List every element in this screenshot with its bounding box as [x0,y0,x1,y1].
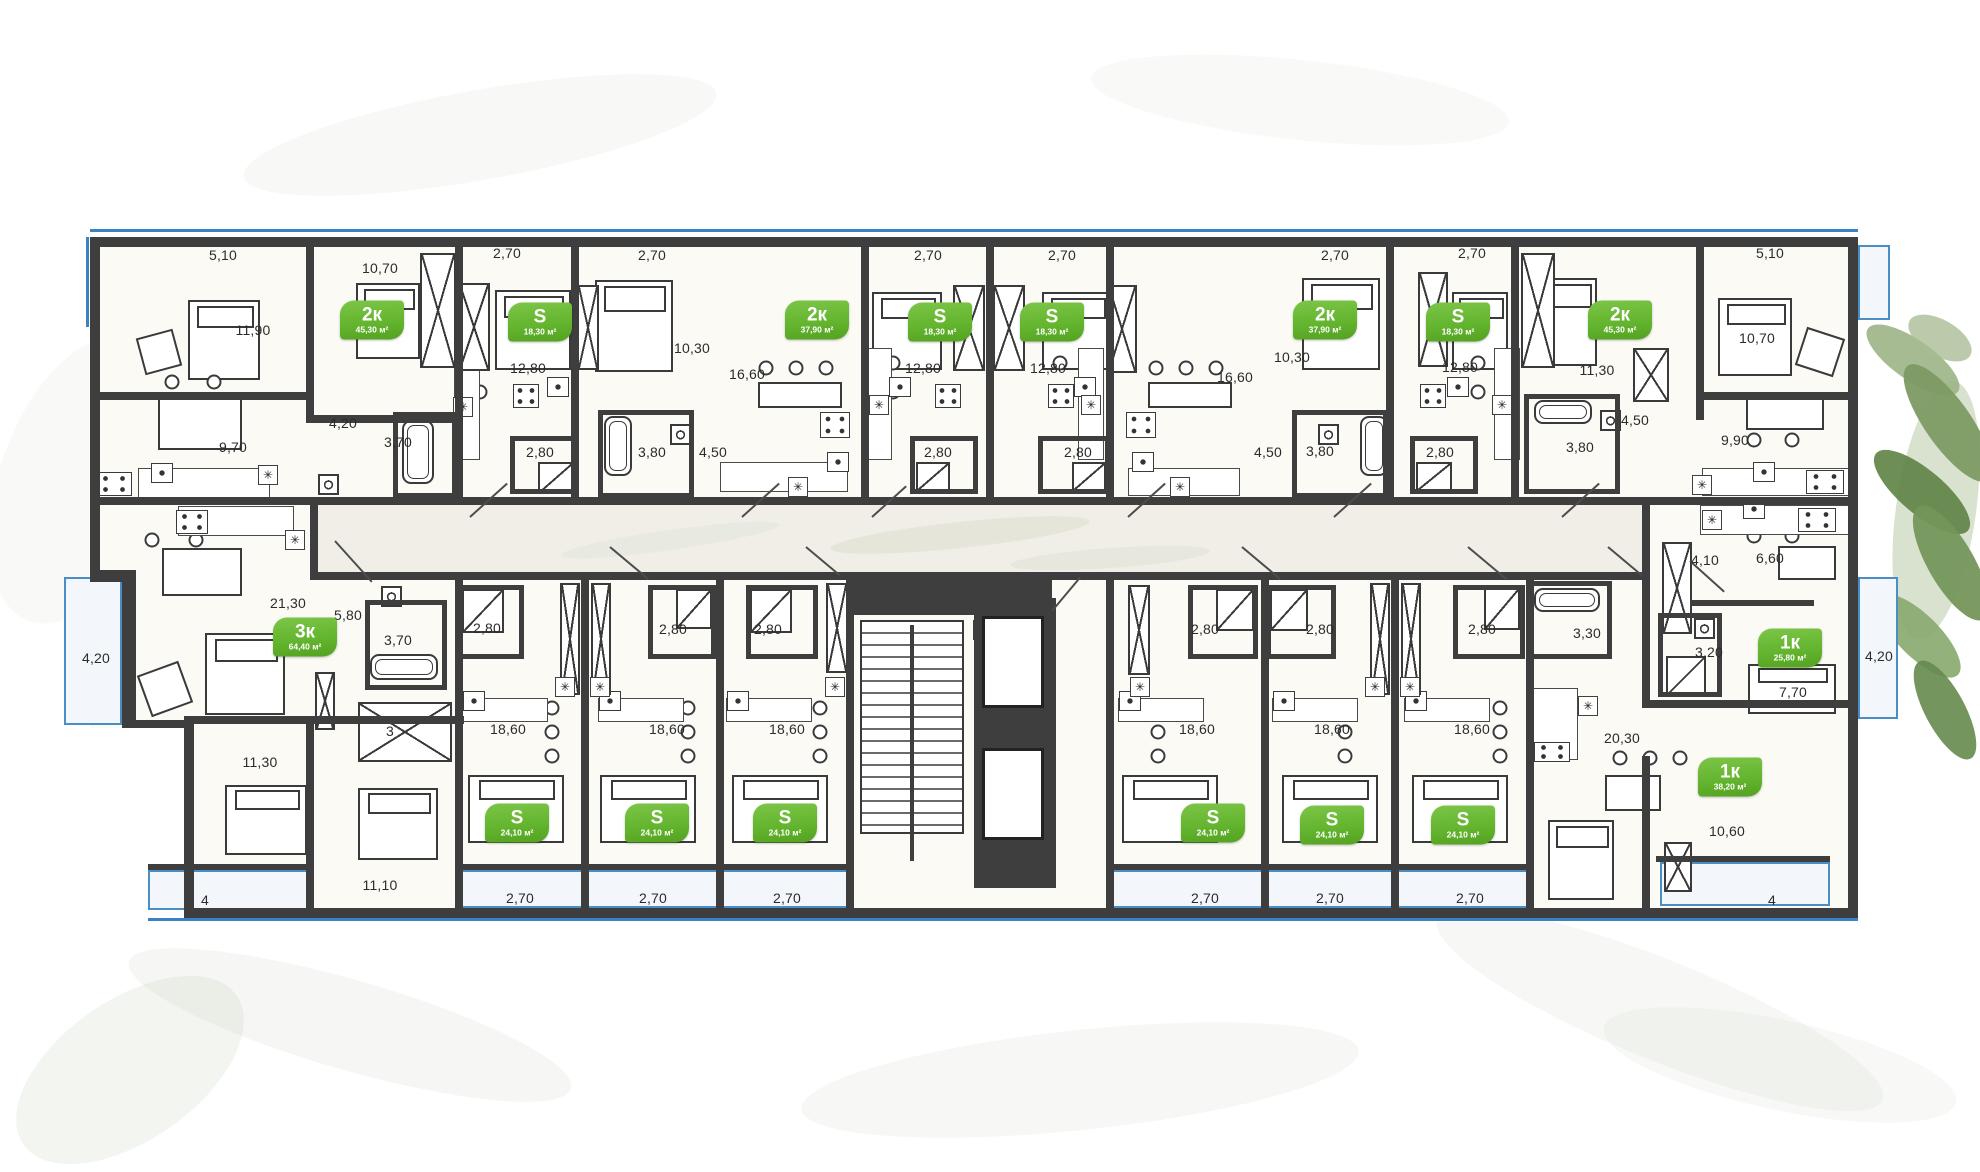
stool [1151,749,1166,764]
dimension-label: 12,80 [1030,360,1066,376]
dimension-label: 5,80 [334,607,362,623]
stool [1493,701,1508,716]
fridge-glyph: ✳ [1370,681,1380,693]
dimension-label: 11,30 [1580,362,1615,378]
stool [1151,725,1166,740]
dimension-label: 18,60 [769,721,805,737]
badge-type: S [651,809,664,827]
badge-type: S [1207,809,1220,827]
stove-icon [1798,508,1836,532]
badge-area: 18,30 м² [524,326,557,336]
wardrobe [420,253,456,368]
dimension-label: 4,50 [699,444,727,460]
fridge-glyph: ✳ [830,681,840,693]
wall [910,625,914,861]
fridge-glyph: ✳ [595,681,605,693]
dimension-label: 12,80 [905,360,941,376]
wall [1110,864,1534,870]
fridge-icon: ✳ [1170,477,1190,497]
fridge-icon: ✳ [590,677,610,697]
badge-area: 37,90 м² [1309,324,1342,334]
dimension-label: 4,20 [82,650,110,666]
sink-icon [463,691,485,711]
dimension-label: 10,70 [1739,330,1775,346]
badge-area: 38,20 м² [1714,781,1747,791]
stove-icon [935,384,961,408]
stool [1471,385,1486,400]
wardrobe [826,583,848,673]
blue-outline [148,918,1858,921]
fridge-icon: ✳ [1702,510,1722,530]
fridge-glyph: ✳ [560,681,570,693]
stool [1785,433,1800,448]
wall [184,724,194,914]
badge-type: 2к [362,306,382,324]
dimension-label: 4,50 [1254,444,1282,460]
wardrobe [1664,842,1692,892]
stool [1493,725,1508,740]
badge-type: 2к [807,306,827,324]
dimension-label: 9,70 [219,439,247,455]
dimension-label: 10,70 [362,260,398,276]
badge-type: 2к [1315,306,1335,324]
badge-type: S [779,809,792,827]
stool [207,375,222,390]
elevator [982,748,1044,840]
dimension-label: 2,80 [924,444,952,460]
apartment-badge[interactable]: S18,30 м² [1426,303,1490,342]
fridge-icon: ✳ [825,677,845,697]
stove-icon [513,384,539,408]
apartment-badge[interactable]: S18,30 м² [508,303,572,342]
dimension-label: 3,80 [638,444,666,460]
fridge-glyph: ✳ [1135,681,1145,693]
dimension-label: 2,70 [1191,890,1219,906]
sink-icon [727,691,749,711]
apartment-badge[interactable]: S24,10 м² [625,804,689,843]
wall [1642,756,1650,918]
badge-type: S [1046,308,1059,326]
badge-area: 64,40 м² [289,641,322,651]
badge-type: 1к [1780,634,1800,652]
badge-area: 37,90 м² [801,324,834,334]
wardrobe [577,285,599,370]
sink-icon [827,452,849,472]
dimension-label: 2,70 [1321,247,1349,263]
badge-area: 25,80 м² [1774,652,1807,662]
dimension-label: 3 [386,723,394,739]
dimension-label: 2,70 [773,890,801,906]
apartment-badge[interactable]: S24,10 м² [1431,806,1495,845]
fridge-icon: ✳ [1692,475,1712,495]
table [1778,546,1836,580]
bed [358,788,438,860]
dimension-label: 11,30 [243,754,278,770]
apartment-badge[interactable]: S18,30 м² [908,303,972,342]
stool [545,749,560,764]
fridge-icon: ✳ [285,530,305,550]
apartment-badge[interactable]: S24,10 м² [753,804,817,843]
stool [1338,749,1353,764]
fridge-glyph: ✳ [1086,399,1096,411]
bathroom-wall [1528,581,1612,659]
badge-area: 24,10 м² [1447,829,1480,839]
balcony [148,870,312,910]
sink-icon [1074,377,1096,397]
dimension-label: 10,60 [1709,823,1745,839]
dimension-label: 3,70 [384,632,412,648]
bathroom-wall [393,412,457,498]
dimension-label: 2,80 [473,620,501,636]
bed [188,300,260,380]
dimension-label: 18,60 [1314,721,1350,737]
dimension-label: 18,60 [649,721,685,737]
wall [90,237,1858,247]
palm-leaf [1902,652,1980,768]
badge-type: S [1457,811,1470,829]
stool [165,375,180,390]
dimension-label: 2,80 [1191,621,1219,637]
stool [681,749,696,764]
fridge-icon: ✳ [555,677,575,697]
badge-area: 24,10 м² [501,827,534,837]
dimension-label: 12,80 [1442,359,1478,375]
table [758,382,842,408]
dimension-label: 2,70 [914,247,942,263]
fridge-icon: ✳ [1492,395,1512,415]
apartment-badge[interactable]: 2к37,90 м² [785,301,849,340]
dimension-label: 4 [201,892,209,908]
badge-area: 45,30 м² [1604,324,1637,334]
balcony [1858,245,1890,320]
wall [90,237,100,577]
background-leaf [796,1001,1363,1159]
dimension-label: 2,80 [1064,444,1092,460]
fridge-glyph: ✳ [1707,514,1717,526]
floorplan-canvas: ✳✳✳✳✳✳✳✳✳✳✳✳✳✳✳✳✳✳ 5,1010,702,702,702,70… [0,0,1980,1172]
dimension-label: 18,60 [1454,721,1490,737]
wall [1511,237,1519,505]
blue-outline [90,229,1858,232]
fridge-glyph: ✳ [793,481,803,493]
fridge-glyph: ✳ [1175,481,1185,493]
wall [1690,600,1814,606]
apartment-badge[interactable]: 3к64,40 м² [273,618,337,657]
table [1746,396,1824,430]
stool [1673,751,1688,766]
dimension-label: 21,30 [270,595,306,611]
stool [545,725,560,740]
wall [184,716,464,724]
badge-area: 24,10 м² [1197,827,1230,837]
wall [846,577,1052,615]
badge-type: S [1452,308,1465,326]
background-leaf [236,49,724,221]
dimension-label: 10,30 [1274,349,1310,365]
dimension-label: 4,20 [1865,648,1893,664]
dimension-label: 2,70 [1456,890,1484,906]
dimension-label: 2,70 [506,890,534,906]
dimension-label: 2,70 [493,245,521,261]
dimension-label: 2,80 [1426,444,1454,460]
dimension-label: 2,70 [639,890,667,906]
wall [1642,497,1650,708]
dimension-label: 7,70 [1779,684,1807,700]
dimension-label: 2,80 [526,444,554,460]
badge-type: 3к [295,623,315,641]
stove-icon [176,510,208,534]
fridge-glyph: ✳ [290,534,300,546]
stool [813,725,828,740]
table [1148,382,1232,408]
badge-area: 18,30 м² [924,326,957,336]
wall [1650,700,1858,708]
apartment-badge[interactable]: S24,10 м² [485,804,549,843]
apartment-badge[interactable]: S18,30 м² [1020,303,1084,342]
dimension-label: 4,10 [1691,552,1719,568]
bed [595,280,673,372]
bed [225,785,307,855]
dimension-label: 12,80 [510,360,546,376]
fridge-icon: ✳ [1578,696,1598,716]
dimension-label: 2,70 [1048,247,1076,263]
stool [813,749,828,764]
background-leaf [1087,38,1513,161]
dimension-label: 3,30 [1573,625,1601,641]
fridge-glyph: ✳ [1497,399,1507,411]
badge-area: 45,30 м² [356,324,389,334]
sink-icon [1132,452,1154,472]
stove-icon [1126,412,1156,438]
dimension-label: 4,50 [1621,412,1649,428]
apartment-badge[interactable]: S24,10 м² [1300,806,1364,845]
badge-type: 2к [1610,306,1630,324]
stool [1179,361,1194,376]
stove-icon [1806,470,1844,494]
dimension-label: 3,80 [1566,439,1594,455]
wall [310,497,318,580]
apartment-badge[interactable]: 1к25,80 м² [1758,629,1822,668]
wall [90,497,1858,505]
badge-area: 18,30 м² [1442,326,1475,336]
fridge-icon: ✳ [1365,677,1385,697]
fridge-glyph: ✳ [874,399,884,411]
dimension-label: 2,80 [754,621,782,637]
dimension-label: 5,10 [1756,245,1784,261]
elevator [982,616,1044,708]
dimension-label: 5,10 [209,247,237,263]
dimension-label: 2,70 [1458,245,1486,261]
blue-outline [86,237,89,327]
dimension-label: 2,80 [1468,621,1496,637]
dimension-label: 2,70 [1316,890,1344,906]
dimension-label: 2,80 [1306,621,1334,637]
badge-type: S [934,308,947,326]
wardrobe [1521,253,1555,368]
dimension-label: 9,90 [1721,432,1749,448]
apartment-badge[interactable]: 2к45,30 м² [340,301,404,340]
dimension-label: 18,60 [490,721,526,737]
stove-icon [1534,742,1570,762]
dimension-label: 2,80 [659,621,687,637]
fridge-icon: ✳ [1130,677,1150,697]
wall [861,237,869,505]
stool [1149,361,1164,376]
wardrobe [1633,348,1669,402]
apartment-badge[interactable]: 2к37,90 м² [1293,301,1357,340]
stool [1613,751,1628,766]
fridge-icon: ✳ [1081,395,1101,415]
dimension-label: 4 [1768,892,1776,908]
fridge-icon: ✳ [258,465,278,485]
badge-type: 1к [1720,763,1740,781]
wall [306,720,314,912]
wall [1848,237,1858,918]
dimension-label: 10,30 [674,340,710,356]
table [1605,775,1661,811]
apartment-badge[interactable]: 1к38,20 м² [1698,758,1762,797]
wardrobe [358,702,452,762]
wall [1696,392,1858,400]
washer-icon [318,474,339,495]
sink-icon [1447,377,1469,397]
wall [122,570,136,728]
sink-icon [547,377,569,397]
stove-icon [1420,384,1446,408]
sink-icon [1753,462,1775,482]
background-leaf [1595,984,1966,1147]
stool [789,361,804,376]
sink-icon [889,377,911,397]
badge-type: S [534,308,547,326]
stool [813,701,828,716]
badge-type: S [511,809,524,827]
badge-area: 24,10 м² [1316,829,1349,839]
wall [455,864,850,870]
wall [1656,856,1830,862]
sink-icon [1273,691,1295,711]
apartment-badge[interactable]: S24,10 м² [1181,804,1245,843]
fridge-glyph: ✳ [1405,681,1415,693]
fridge-icon: ✳ [869,395,889,415]
stool [145,533,160,548]
stove-icon [1048,384,1074,408]
stool [1493,749,1508,764]
bed [1548,820,1614,900]
dimension-label: 11,10 [363,877,398,893]
wall [184,908,1858,918]
wall [986,237,994,505]
badge-area: 18,30 м² [1036,326,1069,336]
fridge-glyph: ✳ [263,469,273,481]
sink-icon [151,463,173,483]
stove-icon [820,412,850,438]
badge-area: 24,10 м² [769,827,802,837]
wardrobe [1128,585,1150,675]
dimension-label: 3,80 [1306,443,1334,459]
stool [819,361,834,376]
table [162,548,242,596]
dimension-label: 20,30 [1604,730,1640,746]
dimension-label: 3,20 [1695,644,1723,660]
dimension-label: 2,70 [638,247,666,263]
badge-type: S [1326,811,1339,829]
dimension-label: 18,60 [1179,721,1215,737]
dimension-label: 16,60 [1217,369,1253,385]
dimension-label: 3,70 [384,434,412,450]
badge-area: 24,10 м² [641,827,674,837]
dimension-label: 16,60 [729,366,765,382]
wall [90,392,314,400]
dimension-label: 6,60 [1756,550,1784,566]
apartment-badge[interactable]: 2к45,30 м² [1588,301,1652,340]
fridge-glyph: ✳ [1583,700,1593,712]
stove-icon [96,472,132,496]
dimension-label: 4,20 [329,415,357,431]
dimension-label: 11,90 [236,322,271,338]
fridge-glyph: ✳ [1697,479,1707,491]
fridge-icon: ✳ [788,477,808,497]
fridge-icon: ✳ [1400,677,1420,697]
wall [148,864,312,870]
